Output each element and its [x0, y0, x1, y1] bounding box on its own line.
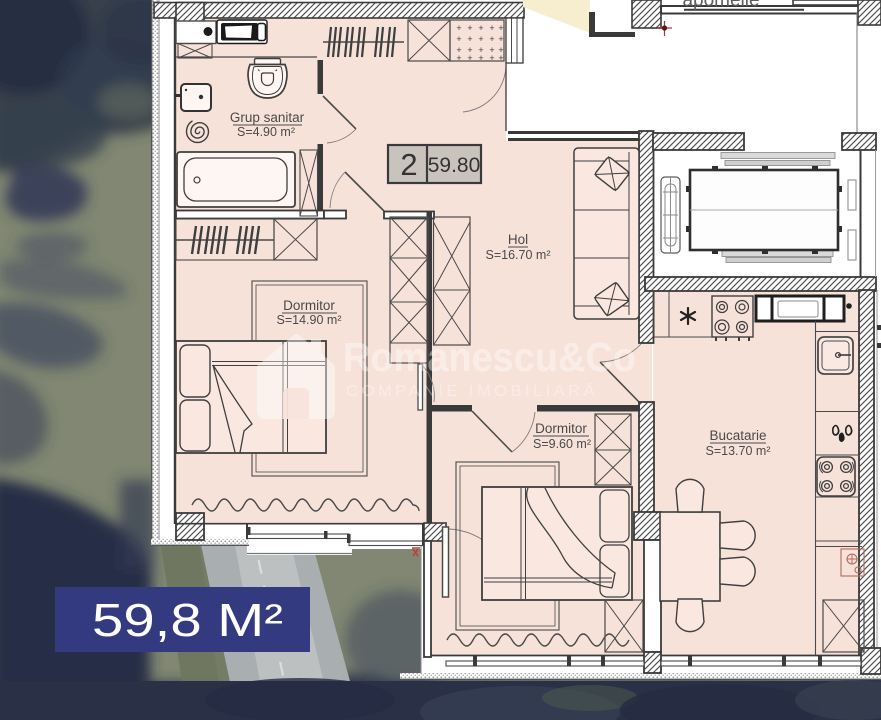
svg-text:S=9.60 m²: S=9.60 m² — [533, 437, 591, 451]
svg-text:Romanescu&Co: Romanescu&Co — [343, 334, 636, 380]
svg-text:Grup sanitar: Grup sanitar — [230, 110, 305, 125]
svg-text:+: + — [489, 34, 494, 44]
svg-text:COMPANIE IMOBILIARĂ: COMPANIE IMOBILIARĂ — [346, 383, 598, 400]
svg-text:+: + — [498, 53, 503, 63]
svg-text:S=16.70 m²: S=16.70 m² — [486, 248, 551, 262]
svg-text:+: + — [478, 23, 483, 33]
svg-text:S=14.90 m²: S=14.90 m² — [277, 313, 342, 327]
svg-text:+: + — [467, 34, 472, 44]
svg-text:+: + — [456, 53, 461, 63]
svg-text:Hol: Hol — [508, 232, 528, 247]
svg-text:+: + — [456, 34, 461, 44]
svg-text:apomelle: apomelle — [682, 0, 759, 11]
svg-text:+: + — [456, 23, 461, 33]
svg-text:+: + — [478, 34, 483, 44]
svg-text:+: + — [467, 23, 472, 33]
svg-text:S=4.90 m²: S=4.90 m² — [237, 125, 295, 139]
svg-text:+: + — [489, 23, 494, 33]
svg-text:+: + — [489, 53, 494, 63]
svg-text:Bucatarie: Bucatarie — [709, 428, 766, 443]
svg-text:+: + — [467, 53, 472, 63]
svg-text:Dormitor: Dormitor — [535, 421, 587, 436]
svg-text:2: 2 — [400, 147, 417, 182]
svg-text:59,8 M²: 59,8 M² — [92, 594, 283, 646]
svg-text:S=13.70 m²: S=13.70 m² — [706, 444, 771, 458]
svg-text:+: + — [498, 34, 503, 44]
svg-text:59.80: 59.80 — [428, 154, 481, 177]
svg-text:Dormitor: Dormitor — [283, 298, 335, 313]
svg-text:+: + — [498, 23, 503, 33]
svg-text:+: + — [478, 53, 483, 63]
